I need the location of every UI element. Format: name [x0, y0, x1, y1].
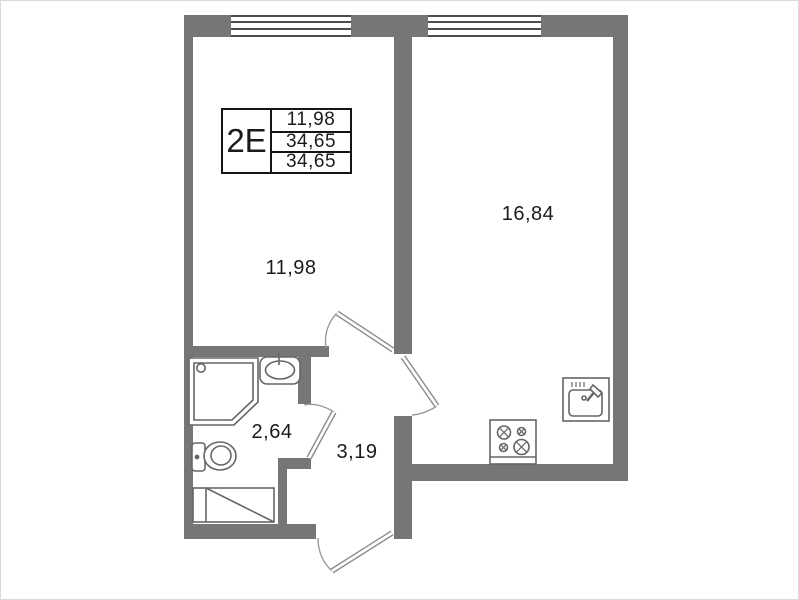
door-swing-icon-living: [325, 313, 393, 350]
unit-type-label: 2Е: [223, 110, 272, 172]
living-room-area-label: 11,98: [241, 257, 341, 279]
door-swing-icon-kitchen: [403, 357, 437, 415]
title-block: 2Е 11,98 34,65 34,65: [221, 108, 352, 174]
stove-icon: [490, 420, 536, 464]
kitchen-sink-icon: [563, 378, 609, 421]
toilet-icon: [192, 442, 236, 471]
door-swing-icon-entrance: [318, 533, 392, 571]
title-block-value-total: 34,65: [272, 131, 350, 152]
title-block-value-living: 11,98: [272, 110, 350, 131]
floor-plan: 11,98 16,84 2,64 3,19 2Е 11,98 34,65 34,…: [0, 0, 799, 600]
hallway-area-label: 3,19: [307, 441, 407, 463]
bathroom-area-label: 2,64: [222, 421, 322, 443]
title-block-value-overall: 34,65: [272, 151, 350, 172]
shower-cabin-icon: [189, 358, 258, 425]
washbasin-icon: [260, 353, 300, 384]
laundry-box-icon: [193, 488, 274, 522]
kitchen-room-area-label: 16,84: [478, 203, 578, 225]
plan-linework: [1, 1, 799, 600]
